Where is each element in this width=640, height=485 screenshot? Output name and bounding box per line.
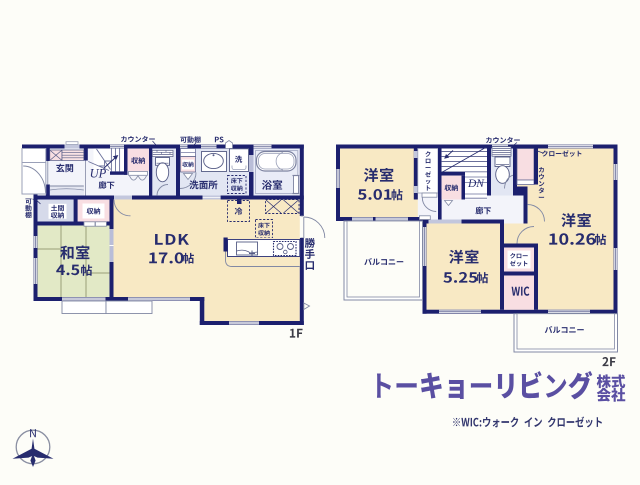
svg-text:UP: UP: [90, 167, 107, 181]
svg-text:DN: DN: [467, 178, 485, 190]
